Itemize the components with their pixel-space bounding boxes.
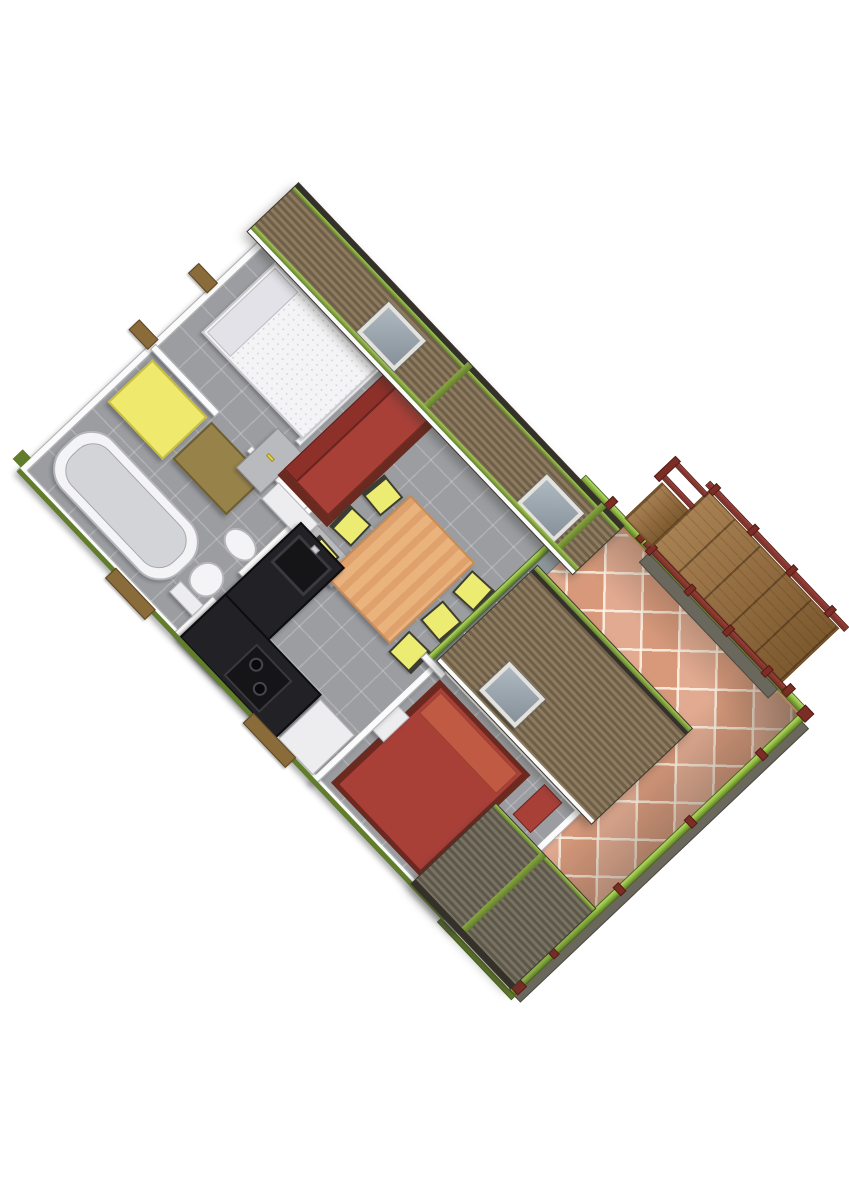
walkway-roof-batten [457, 852, 546, 937]
canvas-background [0, 0, 849, 1200]
